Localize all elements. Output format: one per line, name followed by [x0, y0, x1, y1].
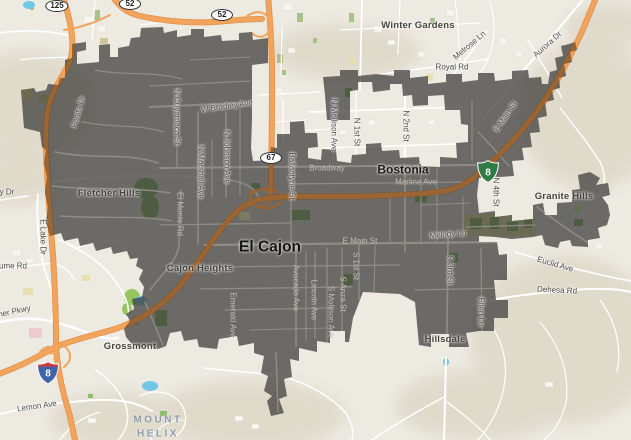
hospital-area — [29, 328, 42, 338]
map-canvas[interactable]: Winter GardensMelrose LnRoyal RdAurora D… — [0, 0, 631, 440]
map-graphics — [0, 0, 631, 440]
